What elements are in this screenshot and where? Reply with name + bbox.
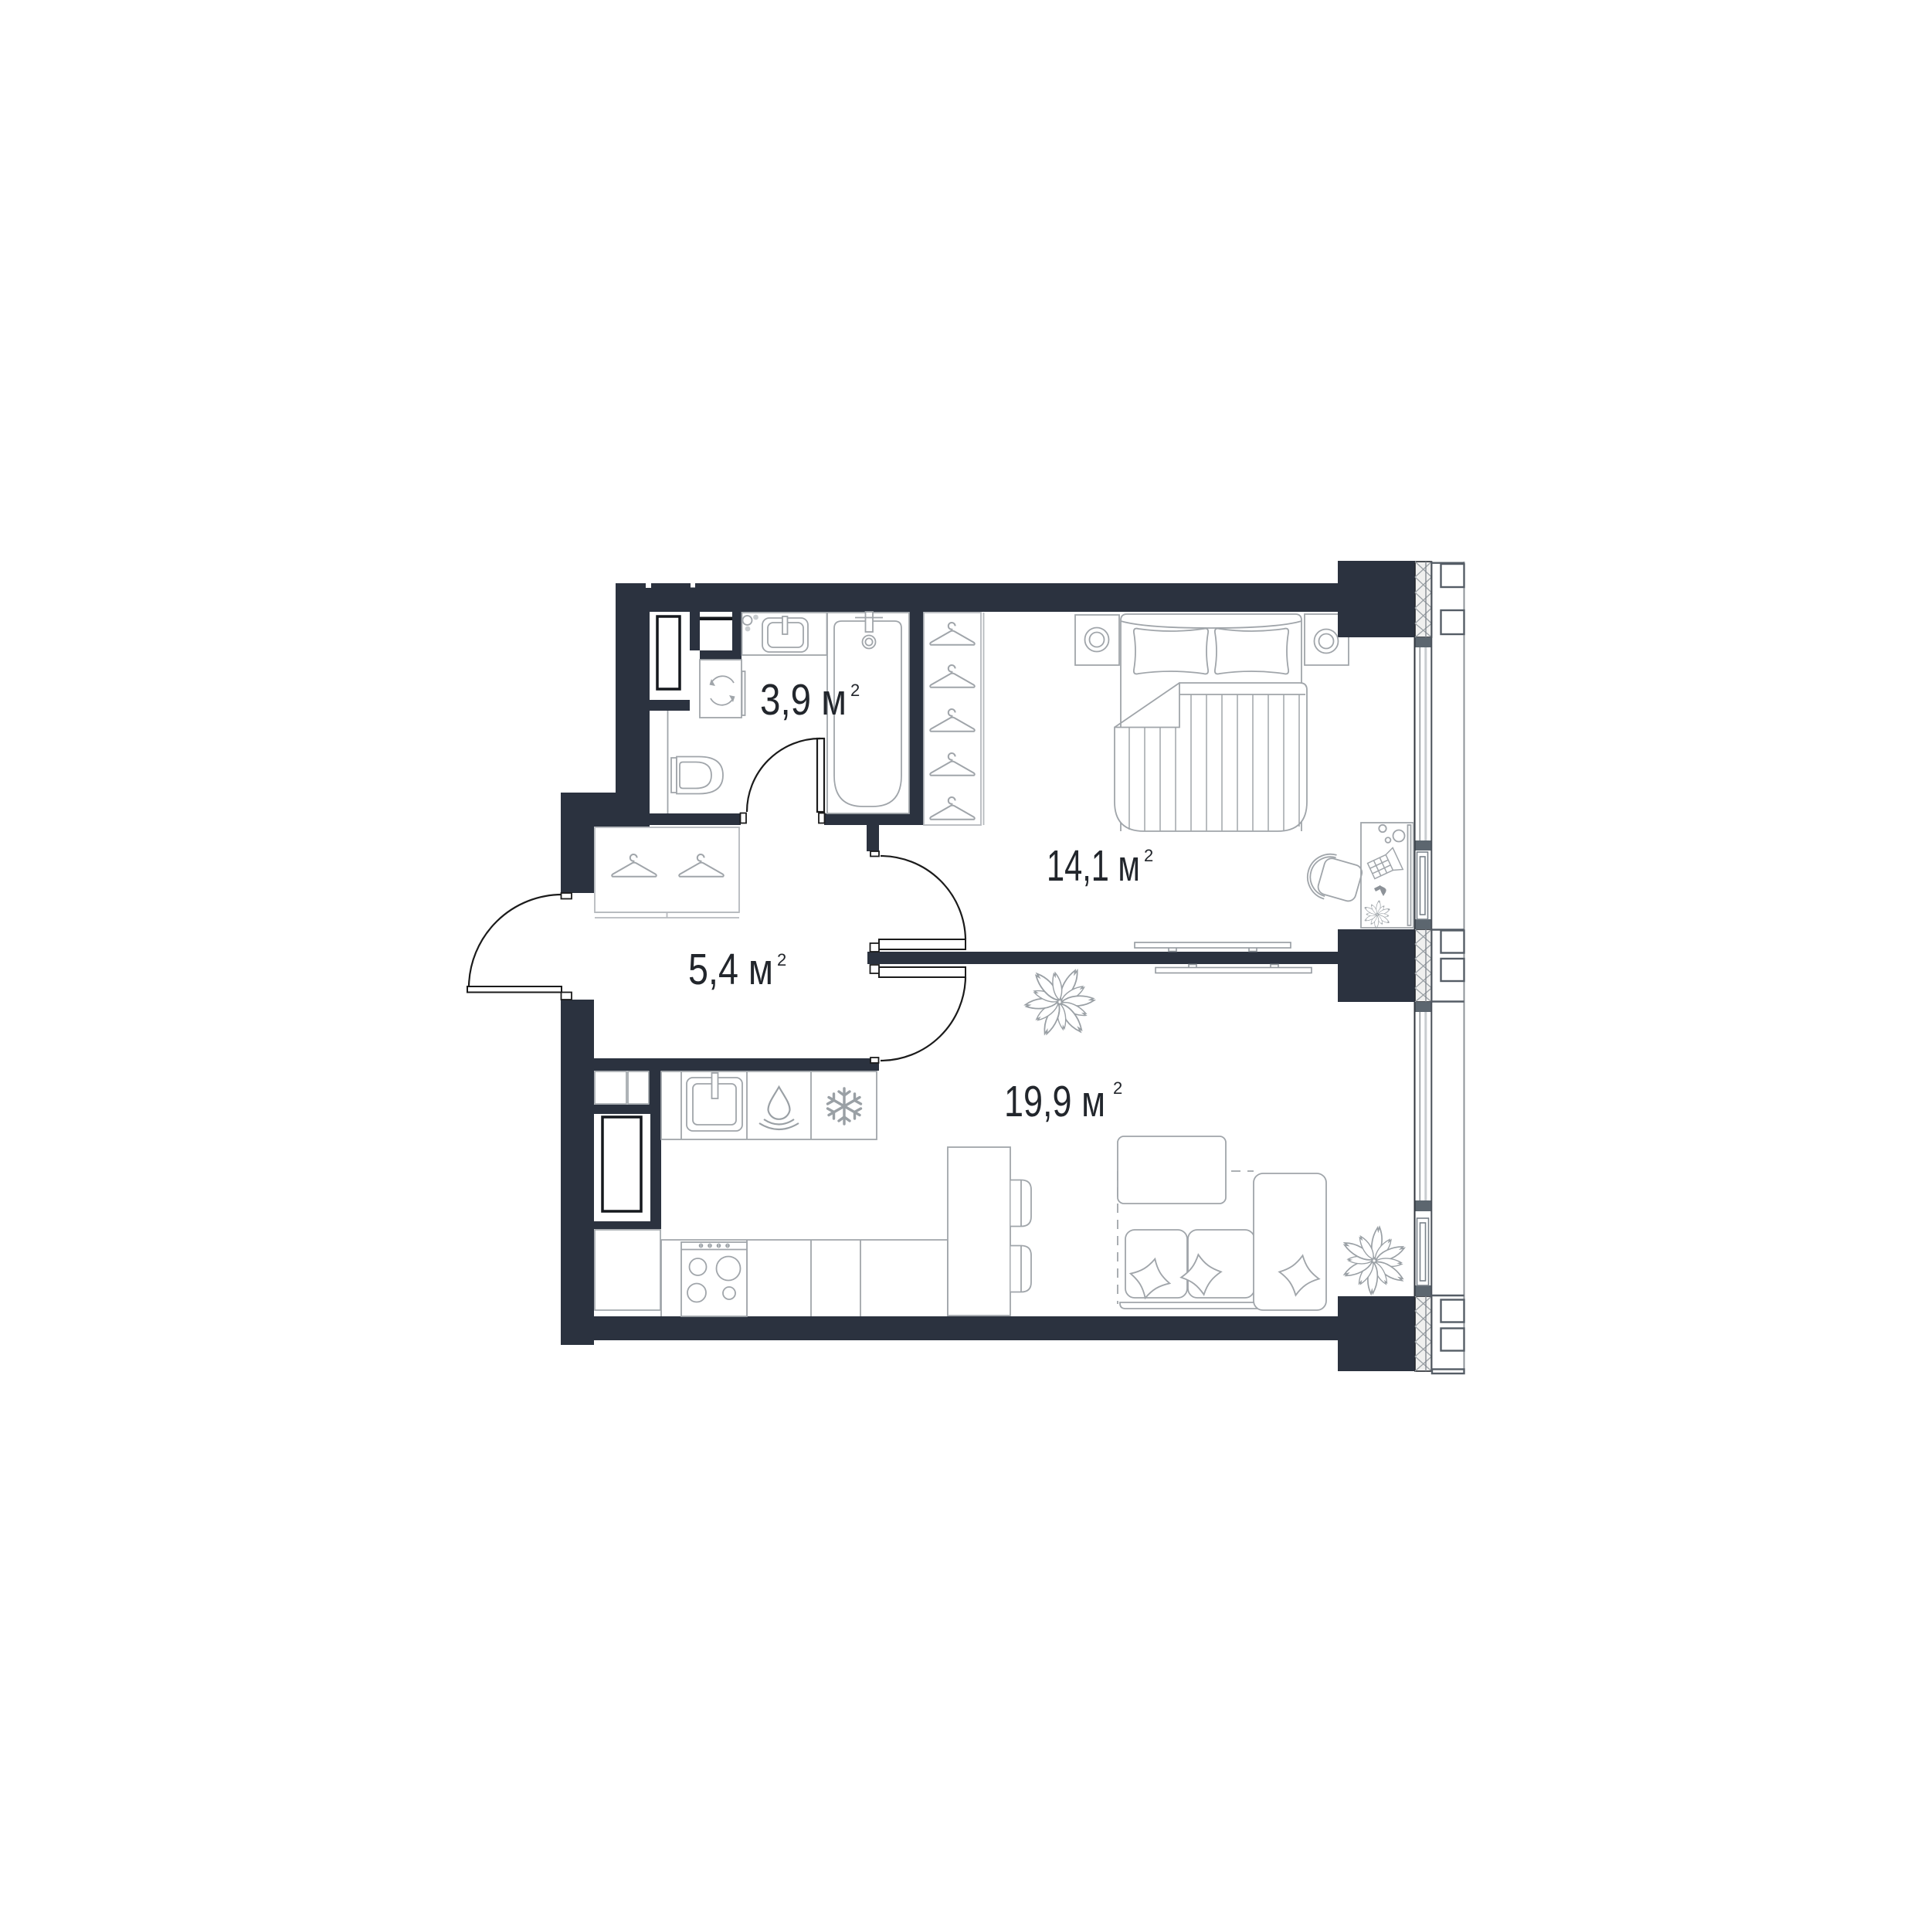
svg-text:5,4 м: 5,4 м [688,945,773,994]
svg-text:2: 2 [850,681,860,700]
svg-text:3,9 м: 3,9 м [760,675,847,725]
svg-text:2: 2 [1144,846,1153,865]
svg-text:19,9 м: 19,9 м [1004,1077,1105,1126]
svg-text:14,1 м: 14,1 м [1047,841,1140,891]
svg-text:2: 2 [1113,1078,1122,1098]
svg-text:2: 2 [777,950,786,969]
